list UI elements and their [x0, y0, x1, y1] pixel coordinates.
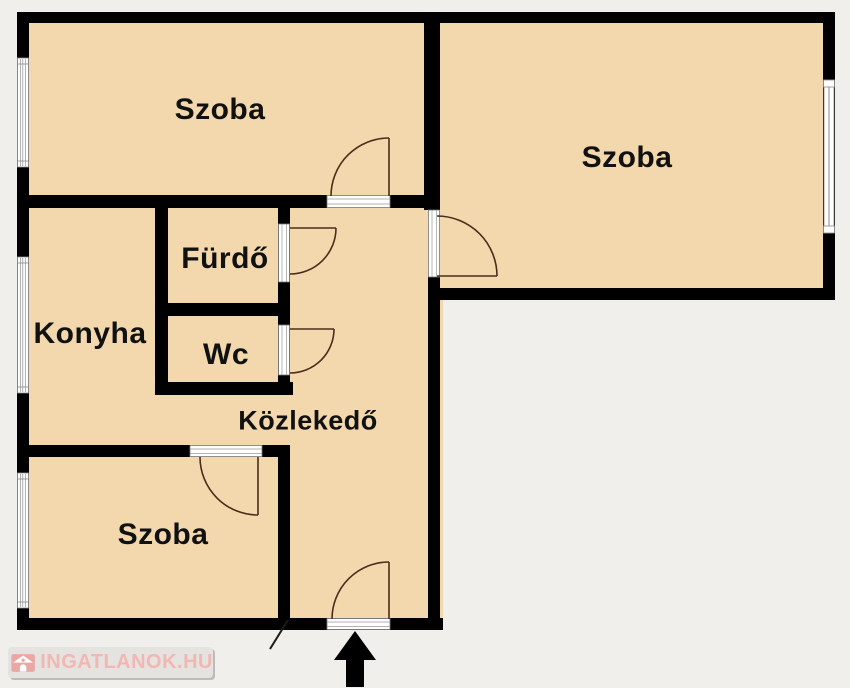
window-left-top: [18, 58, 29, 167]
door-opening-wc: [279, 325, 290, 375]
room-label-szoba-top-right: Szoba: [582, 141, 673, 175]
door-opening-szoba-top-left: [327, 196, 390, 208]
room-label-konyha: Konyha: [33, 317, 146, 351]
watermark-label: INGATLANOK.HU: [40, 652, 213, 674]
window-left-bottom: [18, 473, 29, 608]
door-opening-entrance: [327, 619, 390, 630]
watermark: INGATLANOK.HU: [8, 647, 213, 678]
room-label-furdo: Fürdő: [181, 242, 268, 276]
room-label-kozlekedo: Közlekedő: [238, 406, 378, 437]
floor-plan: Szoba Szoba Fürdő Konyha Wc Közlekedő Sz…: [0, 0, 850, 688]
window-right: [824, 80, 835, 233]
door-opening-furdo: [279, 224, 290, 282]
door-opening-szoba-bottom: [190, 446, 262, 457]
room-label-wc: Wc: [203, 338, 249, 372]
house-icon: [11, 650, 35, 676]
window-left-middle: [18, 257, 29, 393]
room-label-szoba-top-left: Szoba: [175, 93, 266, 127]
door-opening-szoba-top-right: [429, 210, 440, 277]
room-label-szoba-bottom: Szoba: [118, 518, 209, 552]
